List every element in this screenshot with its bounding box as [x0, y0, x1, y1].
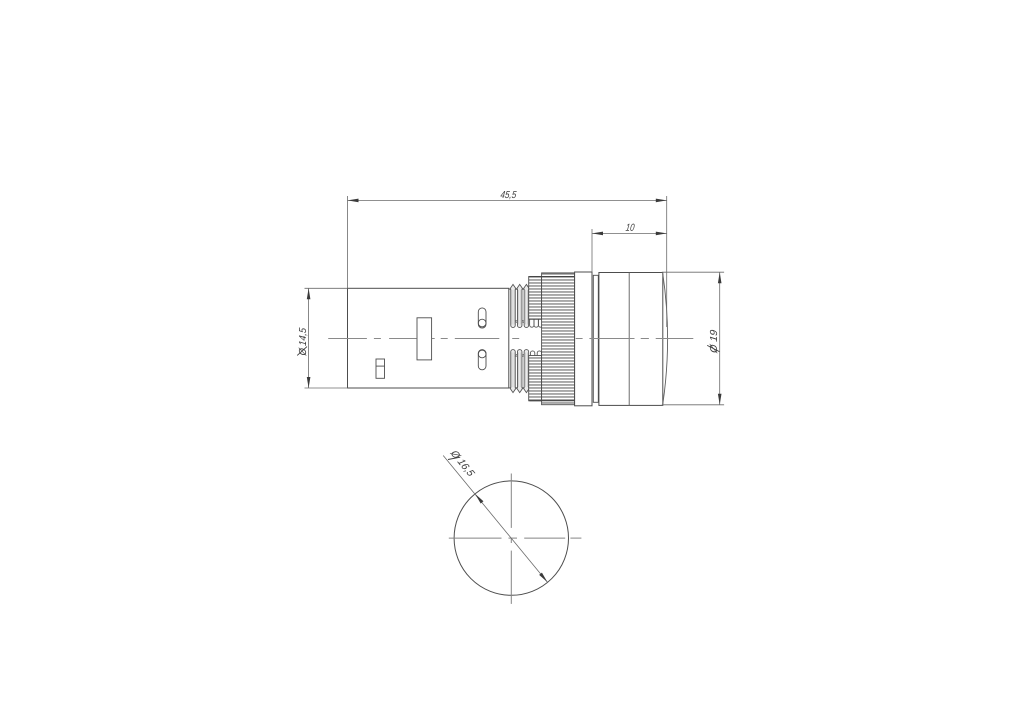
- svg-text:Ø 16,5: Ø 16,5: [447, 448, 476, 479]
- svg-text:Ø 14,5: Ø 14,5: [298, 327, 309, 357]
- svg-text:10: 10: [625, 223, 635, 234]
- svg-text:45,5: 45,5: [500, 190, 517, 201]
